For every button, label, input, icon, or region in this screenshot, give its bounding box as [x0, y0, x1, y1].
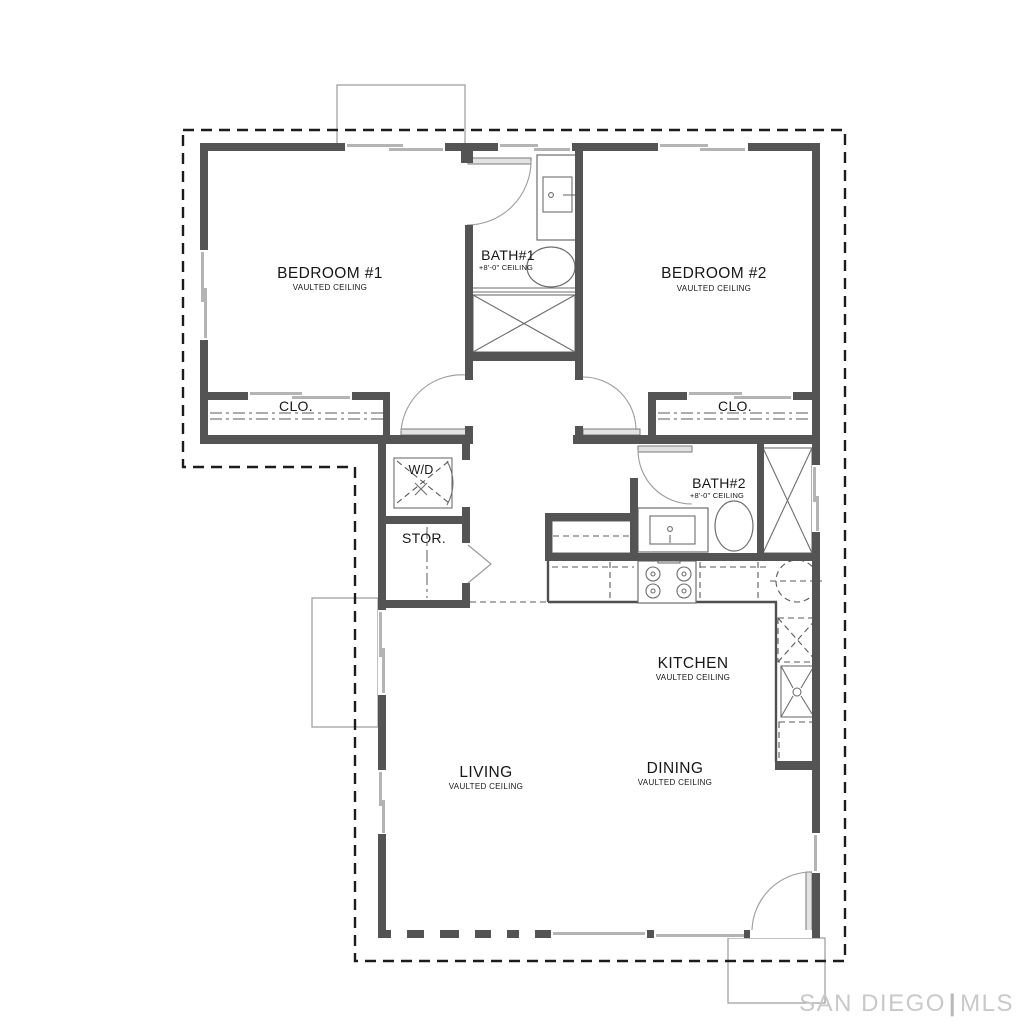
dining-sublabel: VAULTED CEILING — [638, 778, 712, 787]
upper-cabinet-box — [778, 618, 817, 662]
closet1-label: CLO. — [279, 398, 313, 414]
entry-door — [752, 872, 812, 932]
bedroom2-label: BEDROOM #2 — [661, 265, 767, 282]
watermark-suffix: MLS — [960, 990, 1014, 1017]
bedroom2-sublabel: VAULTED CEILING — [677, 284, 751, 293]
pantry-cabinet — [781, 666, 814, 717]
room-label-bedroom1: BEDROOM #1 VAULTED CEILING — [277, 265, 383, 292]
room-label-bedroom2: BEDROOM #2 VAULTED CEILING — [661, 265, 767, 293]
bath2-door — [638, 446, 692, 504]
bath2-label: BATH#2 — [692, 475, 746, 491]
bath2-sublabel: +8'-0" CEILING — [690, 491, 744, 500]
laundry-label: W/D — [409, 463, 434, 477]
bath2-toilet — [715, 501, 753, 551]
room-label-living: LIVING VAULTED CEILING — [449, 764, 523, 791]
bath2-vanity — [638, 508, 708, 552]
room-label-kitchen: KITCHEN VAULTED CEILING — [656, 655, 730, 682]
bath1-door — [467, 158, 531, 225]
stove — [638, 556, 696, 603]
storage-bifold-door — [468, 545, 491, 583]
room-label-bath1: BATH#1 +8'-0" CEILING — [479, 247, 535, 272]
bedroom1-sublabel: VAULTED CEILING — [293, 283, 367, 292]
base-cabinet-box — [779, 722, 817, 762]
bath2-shower — [763, 448, 812, 553]
bath1-sublabel: +8'-0" CEILING — [479, 263, 533, 272]
watermark-divider: | — [949, 990, 957, 1017]
floor-plan-drawing: BEDROOM #1 VAULTED CEILING BEDROOM #2 VA… — [0, 0, 1024, 1022]
bedroom1-door — [401, 375, 467, 435]
dining-label: DINING — [647, 760, 704, 777]
room-label-bath2: BATH#2 +8'-0" CEILING — [690, 475, 746, 500]
bedroom2-door — [583, 377, 640, 435]
bath1-label: BATH#1 — [481, 247, 535, 263]
watermark: SAN DIEGO|MLS — [799, 990, 1014, 1017]
living-label: LIVING — [459, 764, 512, 781]
bath1-shower — [473, 288, 575, 352]
living-sublabel: VAULTED CEILING — [449, 782, 523, 791]
watermark-brand: SAN DIEGO — [799, 990, 946, 1017]
room-label-dining: DINING VAULTED CEILING — [638, 760, 712, 787]
floor-plan-page: BEDROOM #1 VAULTED CEILING BEDROOM #2 VA… — [0, 0, 1024, 1022]
bath1-vanity — [537, 155, 580, 240]
kitchen-label: KITCHEN — [658, 655, 729, 672]
closet2-label: CLO. — [718, 398, 752, 414]
porch-left — [312, 598, 378, 727]
porch-top — [337, 85, 465, 150]
kitchen-sublabel: VAULTED CEILING — [656, 673, 730, 682]
bedroom1-label: BEDROOM #1 — [277, 265, 383, 282]
storage-label: STOR. — [402, 530, 446, 546]
